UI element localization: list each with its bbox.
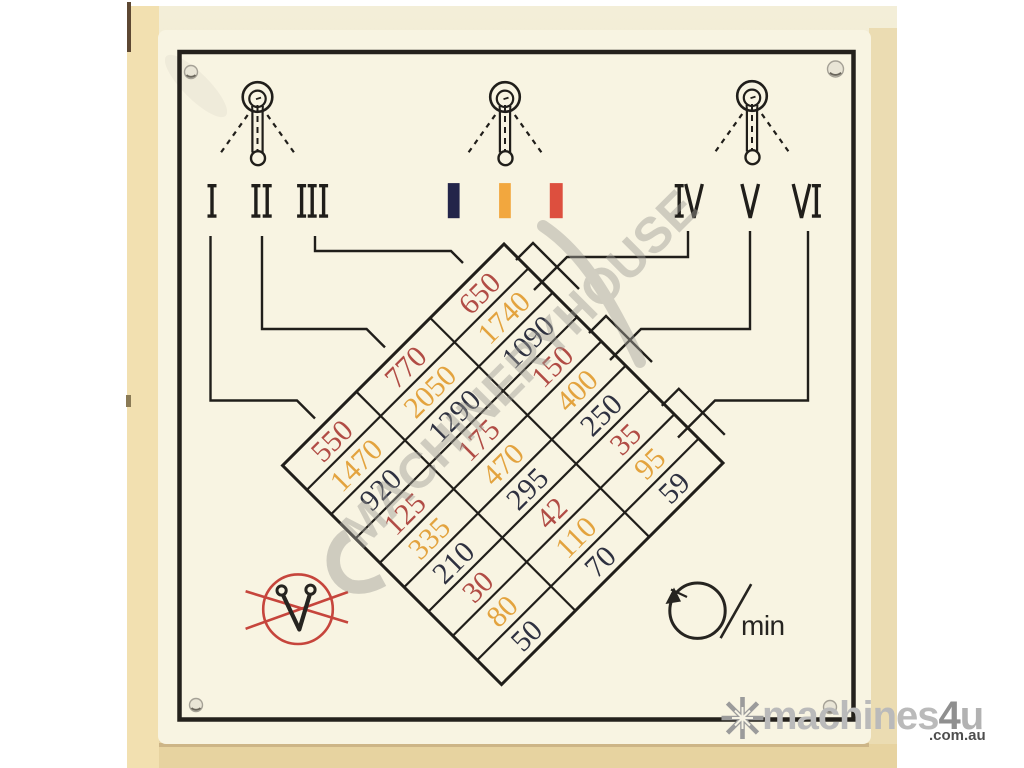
svg-text:min: min xyxy=(741,610,785,641)
svg-text:.com.au: .com.au xyxy=(929,727,986,744)
